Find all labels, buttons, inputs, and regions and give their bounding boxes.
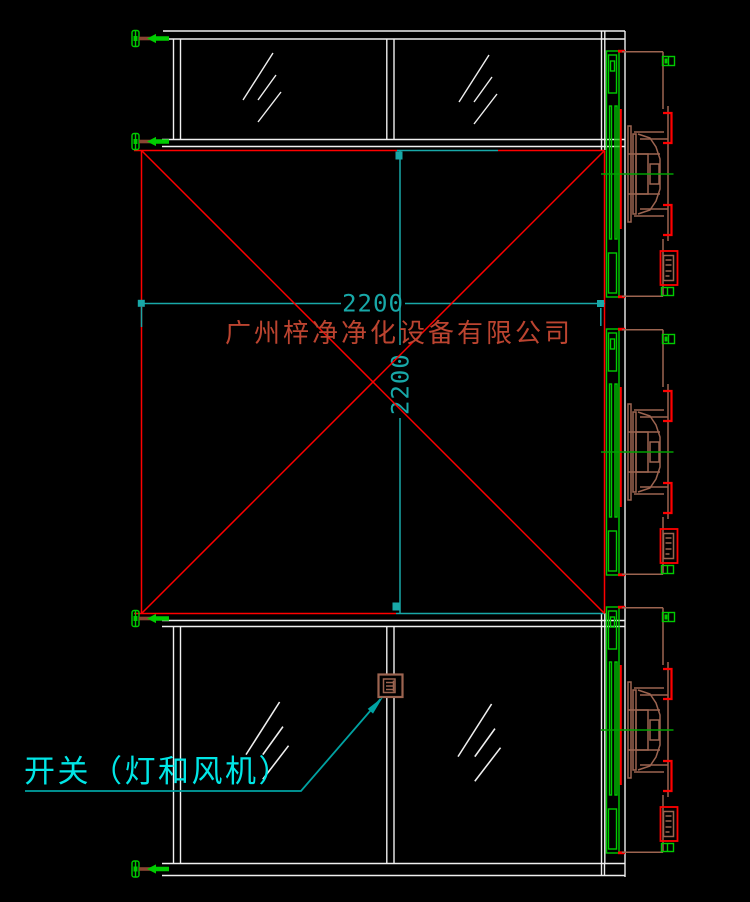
height-dimension-value: 2200 bbox=[387, 353, 415, 415]
cad-canvas: 2200 2200 广州梓净净化设备有限公司 开关（灯和风机） bbox=[0, 0, 750, 902]
glass-hatch-icon bbox=[243, 53, 281, 122]
switch-symbol bbox=[379, 675, 403, 698]
top-glass-partition bbox=[162, 31, 625, 147]
fan-filter-unit-3 bbox=[601, 606, 678, 854]
height-dimension: 2200 bbox=[387, 151, 415, 614]
switch-label-text: 开关（灯和风机） bbox=[24, 754, 292, 790]
diagonal-braces bbox=[142, 151, 605, 614]
company-watermark-text: 广州梓净净化设备有限公司 bbox=[225, 319, 573, 349]
glass-hatch-icon bbox=[459, 55, 497, 124]
glass-hatch-icon bbox=[458, 704, 501, 781]
bottom-glass-partition bbox=[162, 621, 626, 876]
hinge-clamp-icon bbox=[132, 31, 169, 47]
fan-filter-unit-1 bbox=[601, 50, 678, 298]
width-dimension-value: 2200 bbox=[342, 290, 404, 318]
fan-filter-unit-2 bbox=[601, 328, 678, 576]
cad-viewport: 2200 2200 广州梓净净化设备有限公司 开关（灯和风机） bbox=[0, 0, 750, 902]
air-shower-chamber-outline bbox=[134, 151, 605, 614]
